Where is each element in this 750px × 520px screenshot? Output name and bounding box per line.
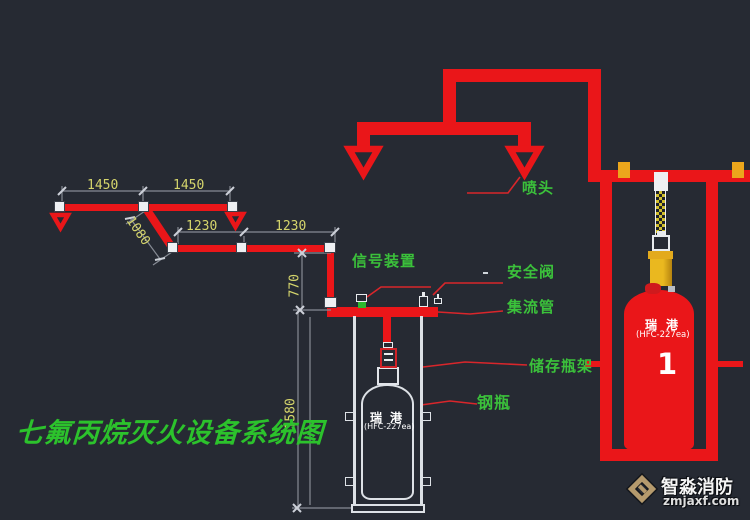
pipe-junction	[55, 202, 64, 211]
outline-valve-cap	[383, 342, 393, 348]
valve-fitting	[652, 235, 670, 251]
outline-cylinder-valve	[380, 348, 397, 368]
label-signal-device: 信号装置	[352, 250, 416, 271]
label-nozzle: 喷头	[522, 177, 554, 198]
nozzle-arrow-small-1-icon	[53, 215, 68, 228]
pipe-junction	[237, 243, 246, 252]
label-steel-cylinder: 钢瓶	[477, 389, 511, 413]
dim-1450-left: 1450	[87, 178, 118, 193]
leader-manifold	[438, 311, 503, 314]
leader-safety-valve	[433, 283, 503, 295]
nozzle-arrow-left-icon	[349, 149, 378, 174]
dimension-lines	[62, 186, 352, 508]
frame-tab	[345, 477, 354, 486]
outline-frame-bottom	[351, 504, 425, 513]
small-marker-dash	[483, 272, 488, 274]
dim-1450-right: 1450	[173, 178, 204, 193]
pipe-junction	[325, 298, 336, 307]
dim-1230-right: 1230	[275, 219, 306, 234]
nozzle-arrows	[53, 149, 539, 228]
dim-1230-left: 1230	[186, 219, 217, 234]
valve-side-outlet	[668, 286, 675, 292]
pipe-junction	[168, 243, 177, 252]
dimension-ticks	[58, 187, 339, 512]
signal-device-1-base	[358, 302, 366, 308]
frame-tab	[345, 412, 354, 421]
leader-nozzle	[467, 177, 520, 193]
flexible-hose	[655, 191, 666, 236]
pipe-junction	[228, 202, 237, 211]
right-cylinder-model: (HFC-227ea)	[636, 330, 690, 340]
label-manifold: 集流管	[507, 296, 555, 317]
drawing-title: 七氟丙烷灭火设备系统图	[15, 411, 325, 450]
right-cylinder-number: 1	[657, 347, 677, 381]
pipe-clamp	[618, 162, 630, 178]
leader-steel-cylinder	[421, 401, 477, 405]
label-safety-valve: 安全阀	[507, 261, 555, 282]
left-cylinder-model: (HFC-227ea)	[364, 422, 414, 431]
outline-cylinder-body	[361, 384, 414, 500]
label-storage-rack: 储存瓶架	[529, 355, 593, 376]
system-diagram-canvas: 瑞港 (HFC-227ea) 瑞港 (HFC-227ea) 1 喷头 信号装置 …	[0, 0, 750, 520]
valve-detail-line	[384, 353, 393, 355]
leader-storage-rack	[423, 362, 527, 367]
frame-tab	[422, 412, 431, 421]
dim-770: 770	[288, 266, 303, 298]
valve-flange	[648, 251, 673, 259]
signal-device-1	[356, 294, 367, 302]
watermark-site: zmjaxf.com	[663, 494, 739, 508]
valve-red-detail	[645, 283, 661, 294]
pipe-junction	[325, 243, 335, 252]
hose-connector	[654, 172, 668, 191]
outline-cylinder-collar	[377, 367, 399, 385]
signal-device-2	[419, 296, 428, 307]
frame-tab	[422, 477, 431, 486]
nozzle-arrow-right-icon	[510, 149, 539, 174]
cylinder-valve-body	[650, 259, 672, 286]
pipe-junction	[139, 202, 148, 211]
valve-detail-line	[384, 359, 393, 361]
nozzle-arrow-small-2-icon	[228, 214, 243, 227]
pipe-clamp	[732, 162, 744, 178]
safety-valve-marker	[434, 298, 442, 304]
